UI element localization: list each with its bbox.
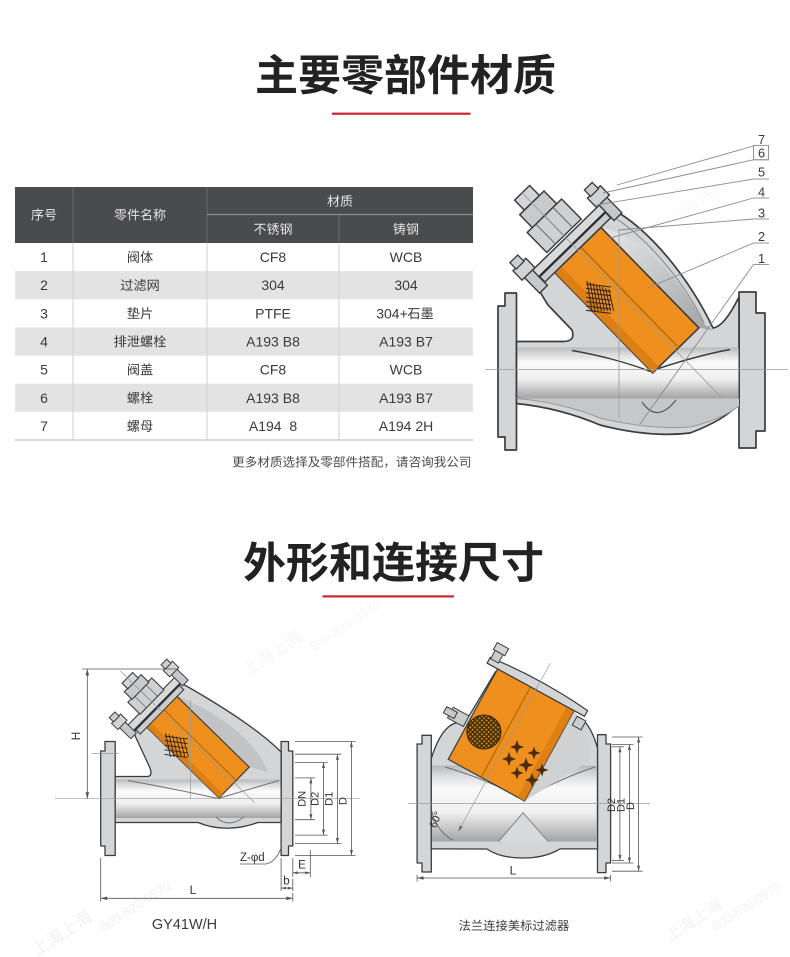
svg-text:5: 5 bbox=[758, 165, 765, 180]
svg-text:A193 B8: A193 B8 bbox=[246, 334, 300, 350]
svg-text:A193 B7: A193 B7 bbox=[379, 390, 433, 406]
svg-text:D: D bbox=[625, 802, 637, 810]
svg-text:DN: DN bbox=[297, 791, 309, 807]
svg-text:5: 5 bbox=[40, 362, 48, 378]
svg-text:4: 4 bbox=[758, 185, 765, 200]
svg-text:CF8: CF8 bbox=[260, 362, 287, 378]
svg-text:1: 1 bbox=[40, 249, 48, 265]
svg-text:H: H bbox=[69, 732, 83, 741]
svg-text:PTFE: PTFE bbox=[255, 305, 291, 321]
svg-text:3: 3 bbox=[758, 206, 765, 221]
svg-text:304: 304 bbox=[394, 277, 418, 293]
svg-text:304+: 304+ bbox=[376, 305, 408, 321]
svg-text:b: b bbox=[283, 876, 289, 888]
svg-text:1: 1 bbox=[758, 251, 765, 266]
svg-text:WCB: WCB bbox=[390, 362, 423, 378]
svg-text:3: 3 bbox=[40, 305, 48, 321]
svg-text:6: 6 bbox=[40, 390, 48, 406]
svg-text:D2: D2 bbox=[310, 792, 322, 806]
svg-text:7: 7 bbox=[40, 418, 48, 434]
svg-text:6: 6 bbox=[758, 146, 765, 161]
svg-text:304: 304 bbox=[261, 277, 285, 293]
svg-text:2: 2 bbox=[758, 229, 765, 244]
svg-text:A194 2H: A194 2H bbox=[379, 418, 433, 434]
svg-text:WCB: WCB bbox=[390, 249, 423, 265]
svg-text:L: L bbox=[190, 883, 197, 897]
svg-text:L: L bbox=[510, 864, 517, 878]
svg-text:A193 B7: A193 B7 bbox=[379, 334, 433, 350]
svg-text:GY41W/H: GY41W/H bbox=[152, 917, 217, 933]
svg-text:A193 B8: A193 B8 bbox=[246, 390, 300, 406]
svg-text:A194 8: A194 8 bbox=[249, 418, 297, 434]
svg-text:Z-φd: Z-φd bbox=[240, 852, 265, 864]
svg-text:4: 4 bbox=[40, 334, 48, 350]
svg-text:E: E bbox=[298, 860, 306, 872]
svg-text:D1: D1 bbox=[323, 792, 335, 806]
svg-text:CF8: CF8 bbox=[260, 249, 287, 265]
svg-text:D: D bbox=[337, 797, 349, 805]
svg-text:2: 2 bbox=[40, 277, 48, 293]
